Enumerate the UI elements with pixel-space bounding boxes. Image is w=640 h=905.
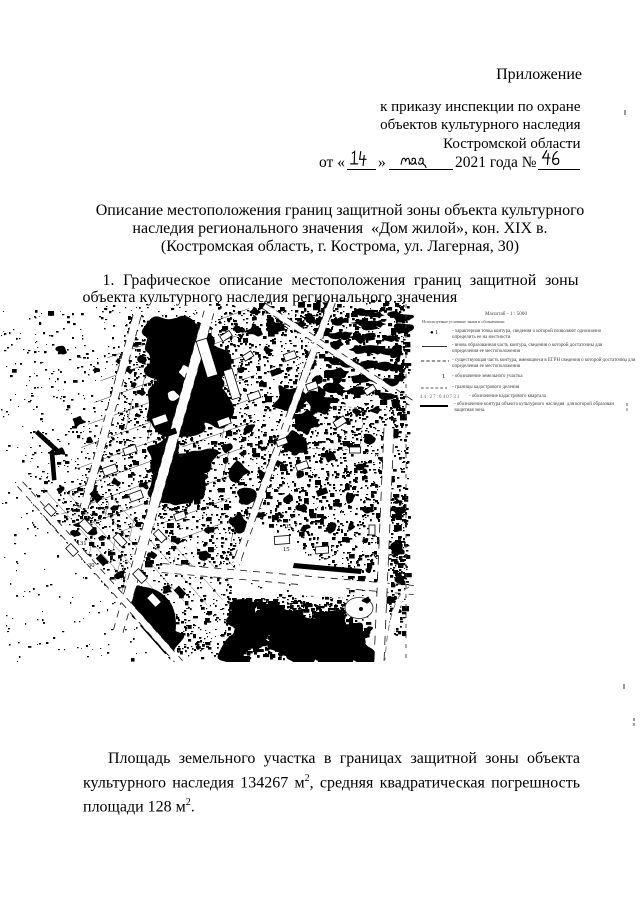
svg-text:30: 30	[88, 562, 95, 569]
svg-text:05: 05	[285, 523, 292, 530]
svg-text:15: 15	[283, 546, 290, 553]
svg-text:31: 31	[80, 540, 87, 547]
